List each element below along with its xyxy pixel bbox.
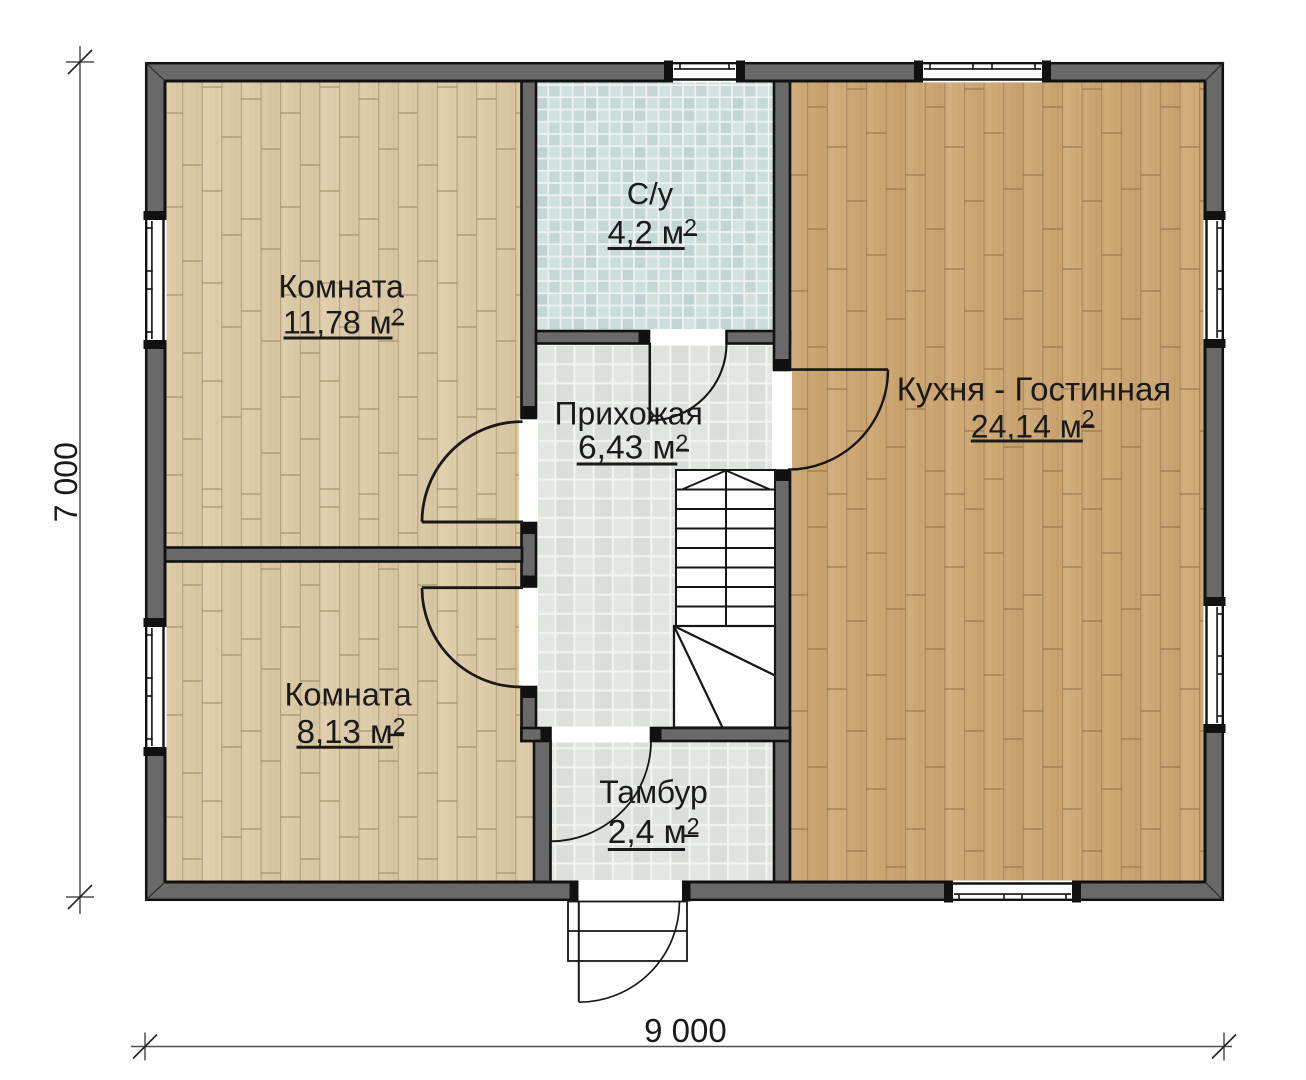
svg-text:Комната: Комната	[279, 269, 405, 305]
svg-text:8,13 м2: 8,13 м2	[297, 713, 406, 750]
svg-text:6,43 м2: 6,43 м2	[578, 429, 688, 466]
svg-text:11,78 м2: 11,78 м2	[283, 304, 404, 341]
svg-text:Кухня - Гостинная: Кухня - Гостинная	[897, 370, 1171, 407]
svg-text:Прихожая: Прихожая	[555, 396, 703, 432]
svg-text:24,14 м2: 24,14 м2	[971, 405, 1095, 445]
svg-text:С/у: С/у	[627, 176, 674, 211]
svg-text:Комната: Комната	[285, 677, 413, 713]
svg-text:Тамбур: Тамбур	[599, 774, 708, 810]
svg-text:9 000: 9 000	[644, 1012, 727, 1049]
svg-text:7 000: 7 000	[48, 442, 84, 522]
svg-text:4,2 м2: 4,2 м2	[608, 214, 697, 251]
svg-text:2,4 м2: 2,4 м2	[608, 813, 700, 851]
